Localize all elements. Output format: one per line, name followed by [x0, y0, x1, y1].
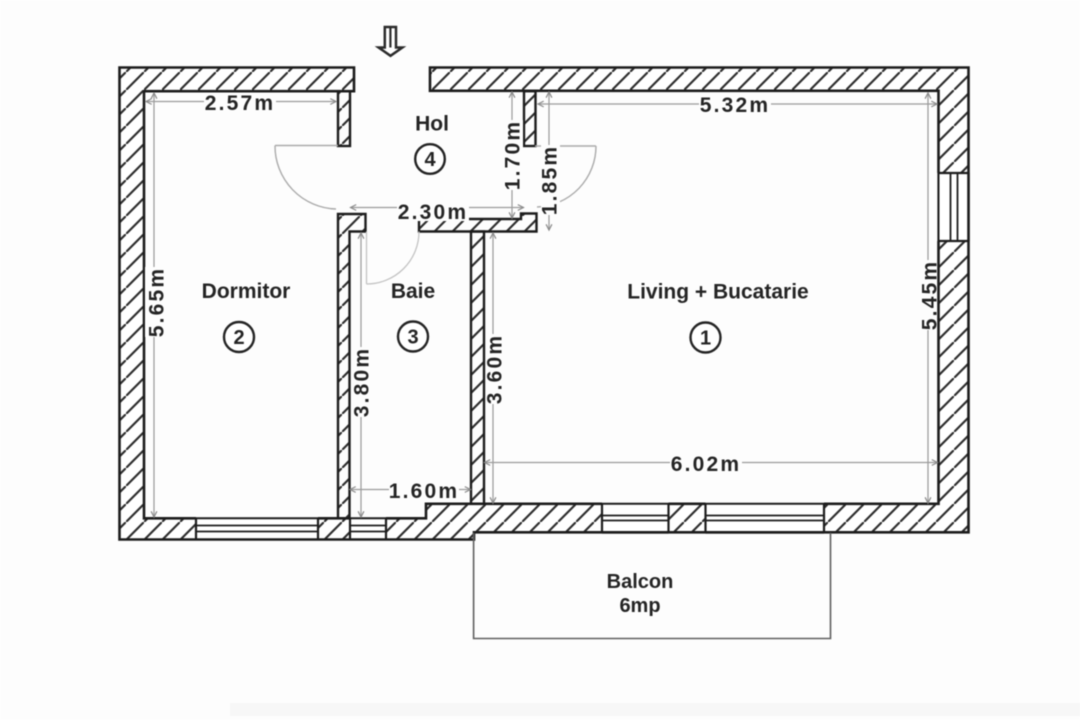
svg-text:1: 1 — [700, 328, 711, 350]
svg-text:3.80m: 3.80m — [351, 347, 374, 418]
svg-text:4: 4 — [424, 149, 436, 171]
svg-text:1.85m: 1.85m — [539, 145, 562, 216]
svg-text:Balcon: Balcon — [607, 571, 674, 593]
svg-text:6mp: 6mp — [619, 595, 660, 617]
svg-text:Hol: Hol — [415, 113, 449, 136]
svg-text:3.60m: 3.60m — [484, 334, 507, 405]
svg-text:5.45m: 5.45m — [919, 260, 942, 331]
svg-text:6.02m: 6.02m — [671, 453, 742, 476]
svg-text:2.57m: 2.57m — [205, 92, 276, 115]
svg-text:Baie: Baie — [391, 280, 435, 303]
svg-text:5.65m: 5.65m — [146, 267, 169, 338]
svg-text:Living + Bucatarie: Living + Bucatarie — [627, 281, 808, 304]
svg-text:5.32m: 5.32m — [700, 94, 771, 117]
svg-text:2.30m: 2.30m — [398, 201, 469, 224]
svg-text:3: 3 — [407, 327, 418, 349]
svg-text:1.60m: 1.60m — [389, 480, 460, 503]
svg-text:1.70m: 1.70m — [502, 120, 525, 191]
svg-text:2: 2 — [233, 327, 244, 349]
svg-text:Dormitor: Dormitor — [202, 280, 291, 303]
